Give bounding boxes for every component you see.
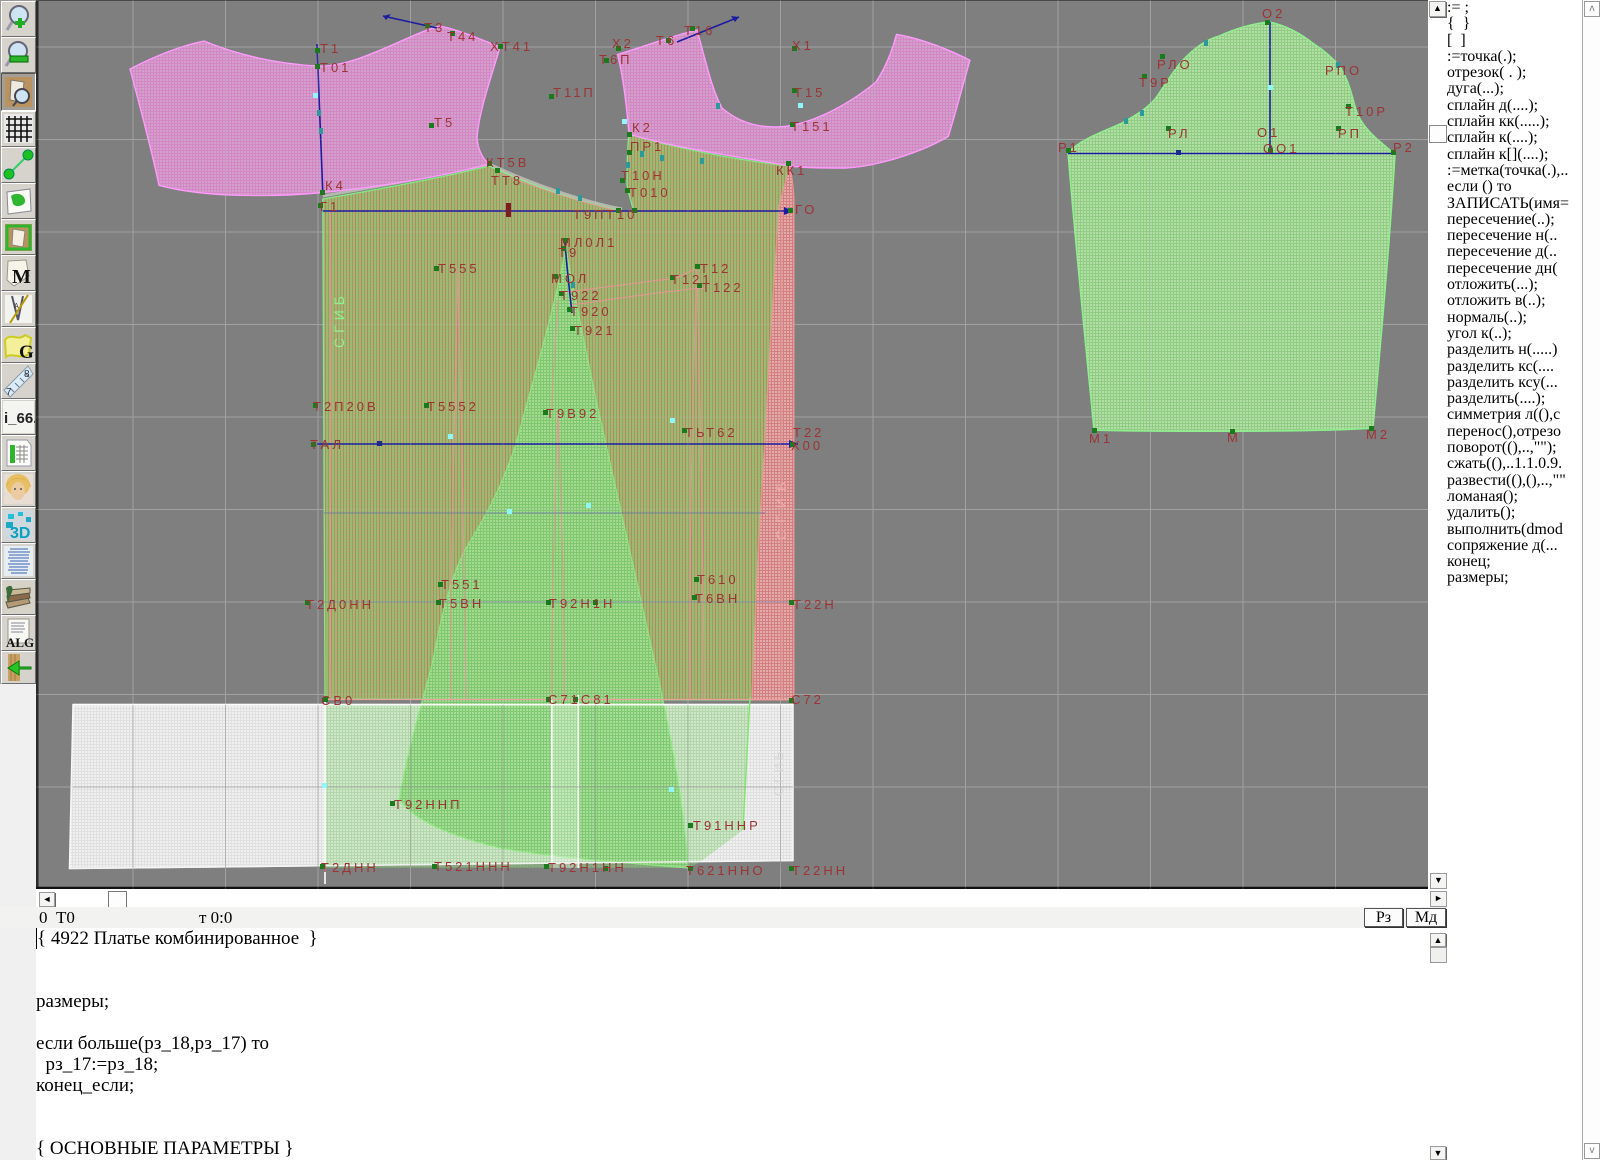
svg-text:РП: РП [1338,126,1362,141]
svg-text:Т9Р: Т9Р [1139,75,1172,90]
svg-text:Т10Р: Т10Р [1345,104,1388,119]
svg-text:С71С81: С71С81 [548,692,614,707]
svg-text:О2: О2 [1262,6,1285,21]
svg-text:Х1: Х1 [792,38,814,53]
svg-text:Т922: Т922 [560,288,602,303]
svg-text:Т610: Т610 [697,572,739,587]
svg-text:М: М [1227,430,1241,445]
svg-text:СГИБ: СГИБ [771,748,786,796]
svg-text:Т22Н: Т22Н [793,597,837,612]
svg-text:МОЛ: МОЛ [551,271,589,286]
svg-text:M: M [12,266,31,288]
svg-text:СГИБ: СГИБ [773,475,789,540]
svg-text:СГИБ: СГИБ [331,291,347,348]
svg-text:Х00: Х00 [791,438,823,453]
svg-text:Т6П: Т6П [599,52,633,67]
svg-text:М1: М1 [1089,431,1113,446]
svg-text:Т122: Т122 [702,280,744,295]
svg-text:Т10Н: Т10Н [621,168,665,183]
svg-text:Т10: Т10 [606,207,637,222]
svg-text:ТТ8: ТТ8 [491,173,523,188]
svg-text:РЛО: РЛО [1157,57,1193,72]
svg-text:Т22НН: Т22НН [792,863,848,878]
svg-text:Т92ННП: Т92ННП [394,797,463,812]
svg-text:КТ5В: КТ5В [486,155,529,170]
svg-text:Т5ВН: Т5ВН [439,596,484,611]
svg-text:Т5: Т5 [434,115,455,130]
svg-text:Т2П20В: Т2П20В [313,399,379,414]
svg-text:ALG: ALG [6,635,34,650]
svg-text:Т44: Т44 [447,29,478,44]
svg-text:Т11П: Т11П [553,85,596,100]
svg-text:ТЬТ62: ТЬТ62 [685,425,738,440]
svg-text:ГО: ГО [795,202,817,217]
svg-text:РПО: РПО [1325,63,1362,78]
svg-text:Т921: Т921 [574,323,616,338]
svg-text:Р1: Р1 [1058,140,1080,155]
svg-text:Т2ДНН: Т2ДНН [321,860,379,875]
svg-text:Т6ВН: Т6ВН [695,591,740,606]
svg-text:М2: М2 [1366,427,1390,442]
svg-text:Т15: Т15 [794,85,825,100]
svg-text:Т9П: Т9П [573,207,607,222]
svg-text:Т01: Т01 [320,60,351,75]
svg-text:СВ0: СВ0 [321,693,355,708]
svg-text:Т551: Т551 [441,577,483,592]
svg-text:Т3: Т3 [424,20,445,35]
svg-text:Т9: Т9 [558,245,579,260]
svg-text:К2: К2 [632,120,653,135]
svg-text:Т92Н1Н: Т92Н1Н [549,596,615,611]
svg-text:Т521ННН: Т521ННН [434,859,513,874]
svg-text:ХТ41: ХТ41 [490,39,533,54]
svg-text:Т1: Т1 [320,41,341,56]
svg-text:Т16: Т16 [684,23,715,38]
svg-text:Т010: Т010 [629,185,671,200]
svg-text:РЛ: РЛ [1168,126,1190,141]
svg-text:Г1: Г1 [320,199,340,214]
svg-text:Т920: Т920 [570,304,612,319]
svg-text:Т91ННР: Т91ННР [693,818,761,833]
svg-text:A: A [14,303,19,310]
svg-text:Т555: Т555 [438,261,480,276]
svg-text:G: G [19,342,34,362]
svg-text:Т9В92: Т9В92 [546,406,599,421]
svg-text:8: 8 [24,369,30,380]
svg-text:Т621ННО: Т621ННО [686,863,766,878]
svg-text:ТАЛ: ТАЛ [310,437,344,452]
svg-text:Т92Н1НН: Т92Н1НН [548,860,627,875]
svg-text:7: 7 [6,387,12,398]
svg-text:i_66.: i_66. [4,410,35,427]
svg-text:Р2: Р2 [1393,140,1415,155]
svg-text:К4: К4 [325,178,346,193]
svg-text:Т151: Т151 [791,119,833,134]
svg-text:ОО1: ОО1 [1263,141,1299,156]
svg-text:Т5552: Т5552 [427,399,479,414]
svg-text:Т2Д0НН: Т2Д0НН [306,597,374,612]
svg-text:О1: О1 [1257,125,1280,140]
svg-text:Т6: Т6 [656,33,677,48]
svg-text:3D: 3D [10,525,30,542]
svg-text:КК1: КК1 [776,163,807,178]
svg-text:С72: С72 [791,692,824,707]
svg-text:ПР1: ПР1 [630,139,664,154]
svg-text:Х2: Х2 [612,36,634,51]
